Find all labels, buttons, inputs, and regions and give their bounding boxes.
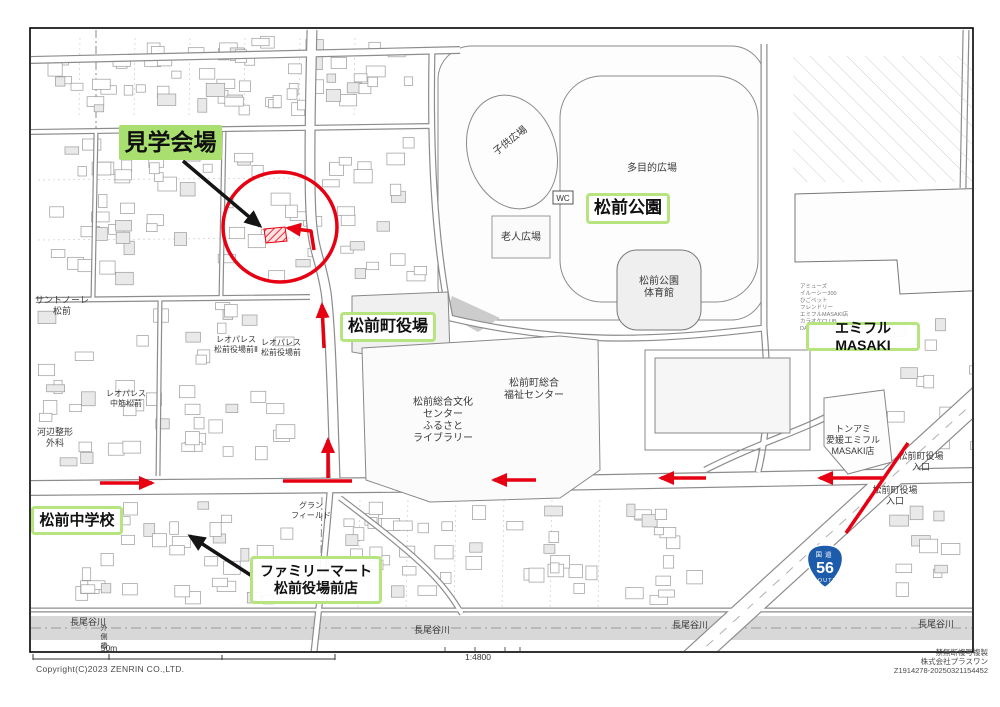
badge-kokudo: 国道: [816, 550, 835, 559]
wc-text: WC: [556, 194, 570, 203]
map-label: 長尾谷川: [672, 620, 708, 630]
parking-hatch: [793, 56, 993, 182]
badge-number: 56: [816, 560, 834, 577]
venue-building: [264, 227, 287, 243]
map-label: 松前町総合福祉センター: [504, 376, 564, 401]
print-info-line: 禁無断複写複製: [894, 648, 988, 657]
scale-ratio: 1:4800: [465, 652, 491, 662]
map-label: 老人広場: [501, 230, 541, 243]
zenrin-map: WC 子供広場多目的広場松前公園体育館老人広場松前総合文化センターふるさとライブ…: [0, 0, 1000, 707]
culture-center-building: [362, 336, 600, 502]
copyright-text: Copyright(C)2023 ZENRIN CO.,LTD.: [36, 664, 184, 674]
map-page: WC 子供広場多目的広場松前公園体育館老人広場松前総合文化センターふるさとライブ…: [0, 0, 1000, 707]
print-info: 禁無断複写複製 株式会社プラスワン Z1914278-2025032115445…: [894, 648, 988, 675]
map-label: レオパレス松前役場前: [261, 338, 301, 357]
map-label: 多目的広場: [627, 161, 677, 174]
welfare-center-building: [655, 358, 790, 433]
badge-route-word: ROUTE: [813, 578, 837, 584]
route-arrow: [322, 305, 324, 348]
print-info-line: 株式会社プラスワン: [894, 657, 988, 666]
map-label: レオパレス松前役場前Ⅱ: [214, 335, 258, 354]
map-label: レオパレス中筋松前: [106, 389, 146, 408]
map-label: 長尾谷川: [918, 619, 954, 629]
scale-label: 50m: [101, 643, 118, 653]
print-info-line: Z1914278-20250321154452: [894, 666, 988, 675]
map-label: 松前公園体育館: [639, 274, 679, 299]
matsumae-park: [438, 46, 765, 332]
map-label: 長尾谷川: [414, 625, 450, 635]
